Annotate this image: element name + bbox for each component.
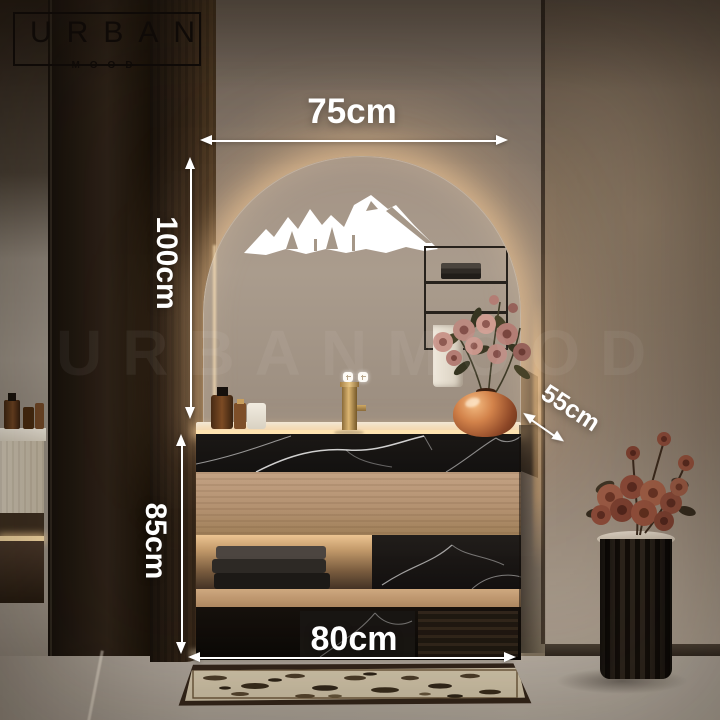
towel <box>216 546 326 559</box>
mirror-reflection-towel-stack <box>441 263 481 279</box>
adjoining-cabinet-shadow <box>0 513 44 537</box>
dimension-label-mirror-height: 100cm <box>145 203 183 323</box>
gold-faucet <box>342 384 357 430</box>
white-jar <box>247 403 266 429</box>
amber-bottle <box>4 400 20 429</box>
adjoining-cabinet-base <box>0 541 44 603</box>
adjoining-room <box>0 0 48 720</box>
adjoining-counter <box>0 428 46 441</box>
dimension-arrow-mirror-height <box>184 157 198 419</box>
folded-towels <box>212 546 330 589</box>
oak-drawer <box>196 472 521 535</box>
faucet-handle <box>357 405 366 411</box>
arrow-head-right <box>504 652 516 662</box>
vanity-side-shadow <box>519 425 546 653</box>
copper-vase <box>453 391 517 437</box>
brand-logo-primary: URBAN <box>30 16 210 50</box>
arrow-shaft <box>209 140 499 143</box>
brand-logo-secondary: MOOD <box>71 60 142 71</box>
adjoining-cabinet <box>0 441 44 513</box>
dimension-arrow-mirror-width <box>200 134 508 148</box>
arrow-shaft <box>197 657 507 660</box>
bottom-shelf <box>196 589 521 607</box>
product-photo-scene: URBANMOOD URBAN MOOD 75cm 100cm 85cm 55c… <box>0 0 720 720</box>
dimension-label-vanity-height: 85cm <box>134 482 172 600</box>
dimension-arrow-vanity-width <box>188 651 516 665</box>
shelf-bar <box>426 281 506 284</box>
marble-shelf-panel <box>372 535 521 589</box>
rug-pattern <box>185 666 525 702</box>
bottle-cap <box>8 393 16 401</box>
amber-bottle <box>234 403 246 429</box>
arrow-head-bottom <box>185 407 195 419</box>
dimension-arrow-vanity-height <box>175 434 189 654</box>
arrow-head-bottom <box>176 642 186 654</box>
marble-veins <box>372 535 521 589</box>
glass-edge-highlight <box>50 0 52 710</box>
amber-bottle <box>211 395 233 429</box>
arrow-shaft <box>181 443 184 645</box>
arrow-shaft <box>190 166 193 410</box>
towel <box>212 559 326 573</box>
faucet-shadow <box>334 430 364 435</box>
amber-bottle <box>35 403 44 429</box>
dimension-label-mirror-width: 75cm <box>300 92 404 132</box>
mountain-decal-icon <box>236 191 442 263</box>
arrow-head-right <box>496 135 508 145</box>
bottle-cap <box>237 399 244 404</box>
brand-logo: URBAN MOOD <box>13 12 201 66</box>
amber-bottle <box>23 407 34 429</box>
marble-veins <box>196 434 521 472</box>
fluted-pedestal <box>600 539 672 679</box>
towel <box>214 573 330 589</box>
brand-watermark: URBANMOOD <box>56 316 696 390</box>
rug <box>175 660 535 708</box>
rug-field <box>185 666 525 702</box>
marble-drawer <box>196 434 521 472</box>
